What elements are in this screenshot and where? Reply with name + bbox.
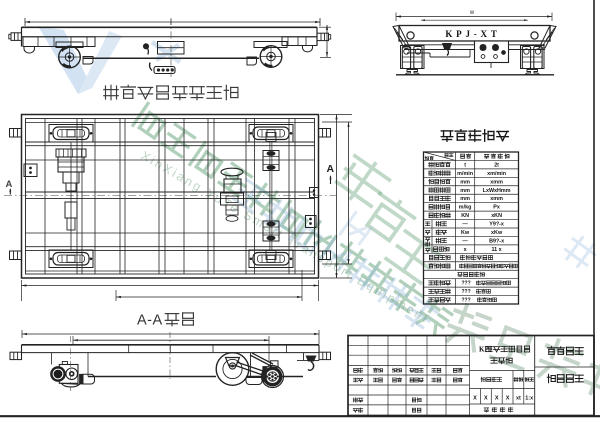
svg-text:mm: mm xyxy=(460,196,470,202)
svg-text:mm: mm xyxy=(460,188,470,194)
svg-text:A: A xyxy=(6,179,13,190)
svg-text:xKN: xKN xyxy=(491,213,502,219)
svg-text:A-A: A-A xyxy=(137,313,163,329)
svg-text:—: — xyxy=(462,222,468,228)
svg-text:Px: Px xyxy=(493,205,500,211)
svg-text:KPJ-XT: KPJ-XT xyxy=(445,29,500,39)
svg-text:x: x xyxy=(464,247,467,253)
svg-text:???: ??? xyxy=(462,298,471,304)
svg-text:m/min: m/min xyxy=(457,171,473,177)
svg-text:xKw: xKw xyxy=(491,230,503,236)
svg-text:t: t xyxy=(464,162,466,168)
svg-text:xm/min: xm/min xyxy=(487,171,506,177)
svg-text:m/kg: m/kg xyxy=(459,205,472,211)
svg-text:B9?-x: B9?-x xyxy=(489,238,504,244)
svg-text:xmm: xmm xyxy=(490,179,503,185)
svg-text:Kw: Kw xyxy=(461,230,470,236)
svg-text:2t: 2t xyxy=(494,162,499,168)
svg-text:KN: KN xyxy=(461,213,469,219)
svg-text:???: ??? xyxy=(462,289,471,295)
svg-text:X: X xyxy=(495,396,499,402)
svg-text:X: X xyxy=(473,396,477,402)
svg-text:mm: mm xyxy=(460,179,470,185)
svg-text:LxWxHmm: LxWxHmm xyxy=(483,188,511,194)
svg-text:1:x: 1:x xyxy=(525,396,534,402)
svg-text:—: — xyxy=(462,238,468,244)
svg-text:xt: xt xyxy=(516,396,521,402)
svg-text:A: A xyxy=(327,163,335,175)
svg-text:X: X xyxy=(484,396,488,402)
svg-text:???: ??? xyxy=(462,281,471,287)
svg-text:w: w xyxy=(469,10,475,16)
svg-text:X: X xyxy=(506,396,510,402)
svg-text:11 x: 11 x xyxy=(491,247,501,253)
svg-text:xmm: xmm xyxy=(490,196,503,202)
svg-text:Y9?-x: Y9?-x xyxy=(489,222,504,228)
